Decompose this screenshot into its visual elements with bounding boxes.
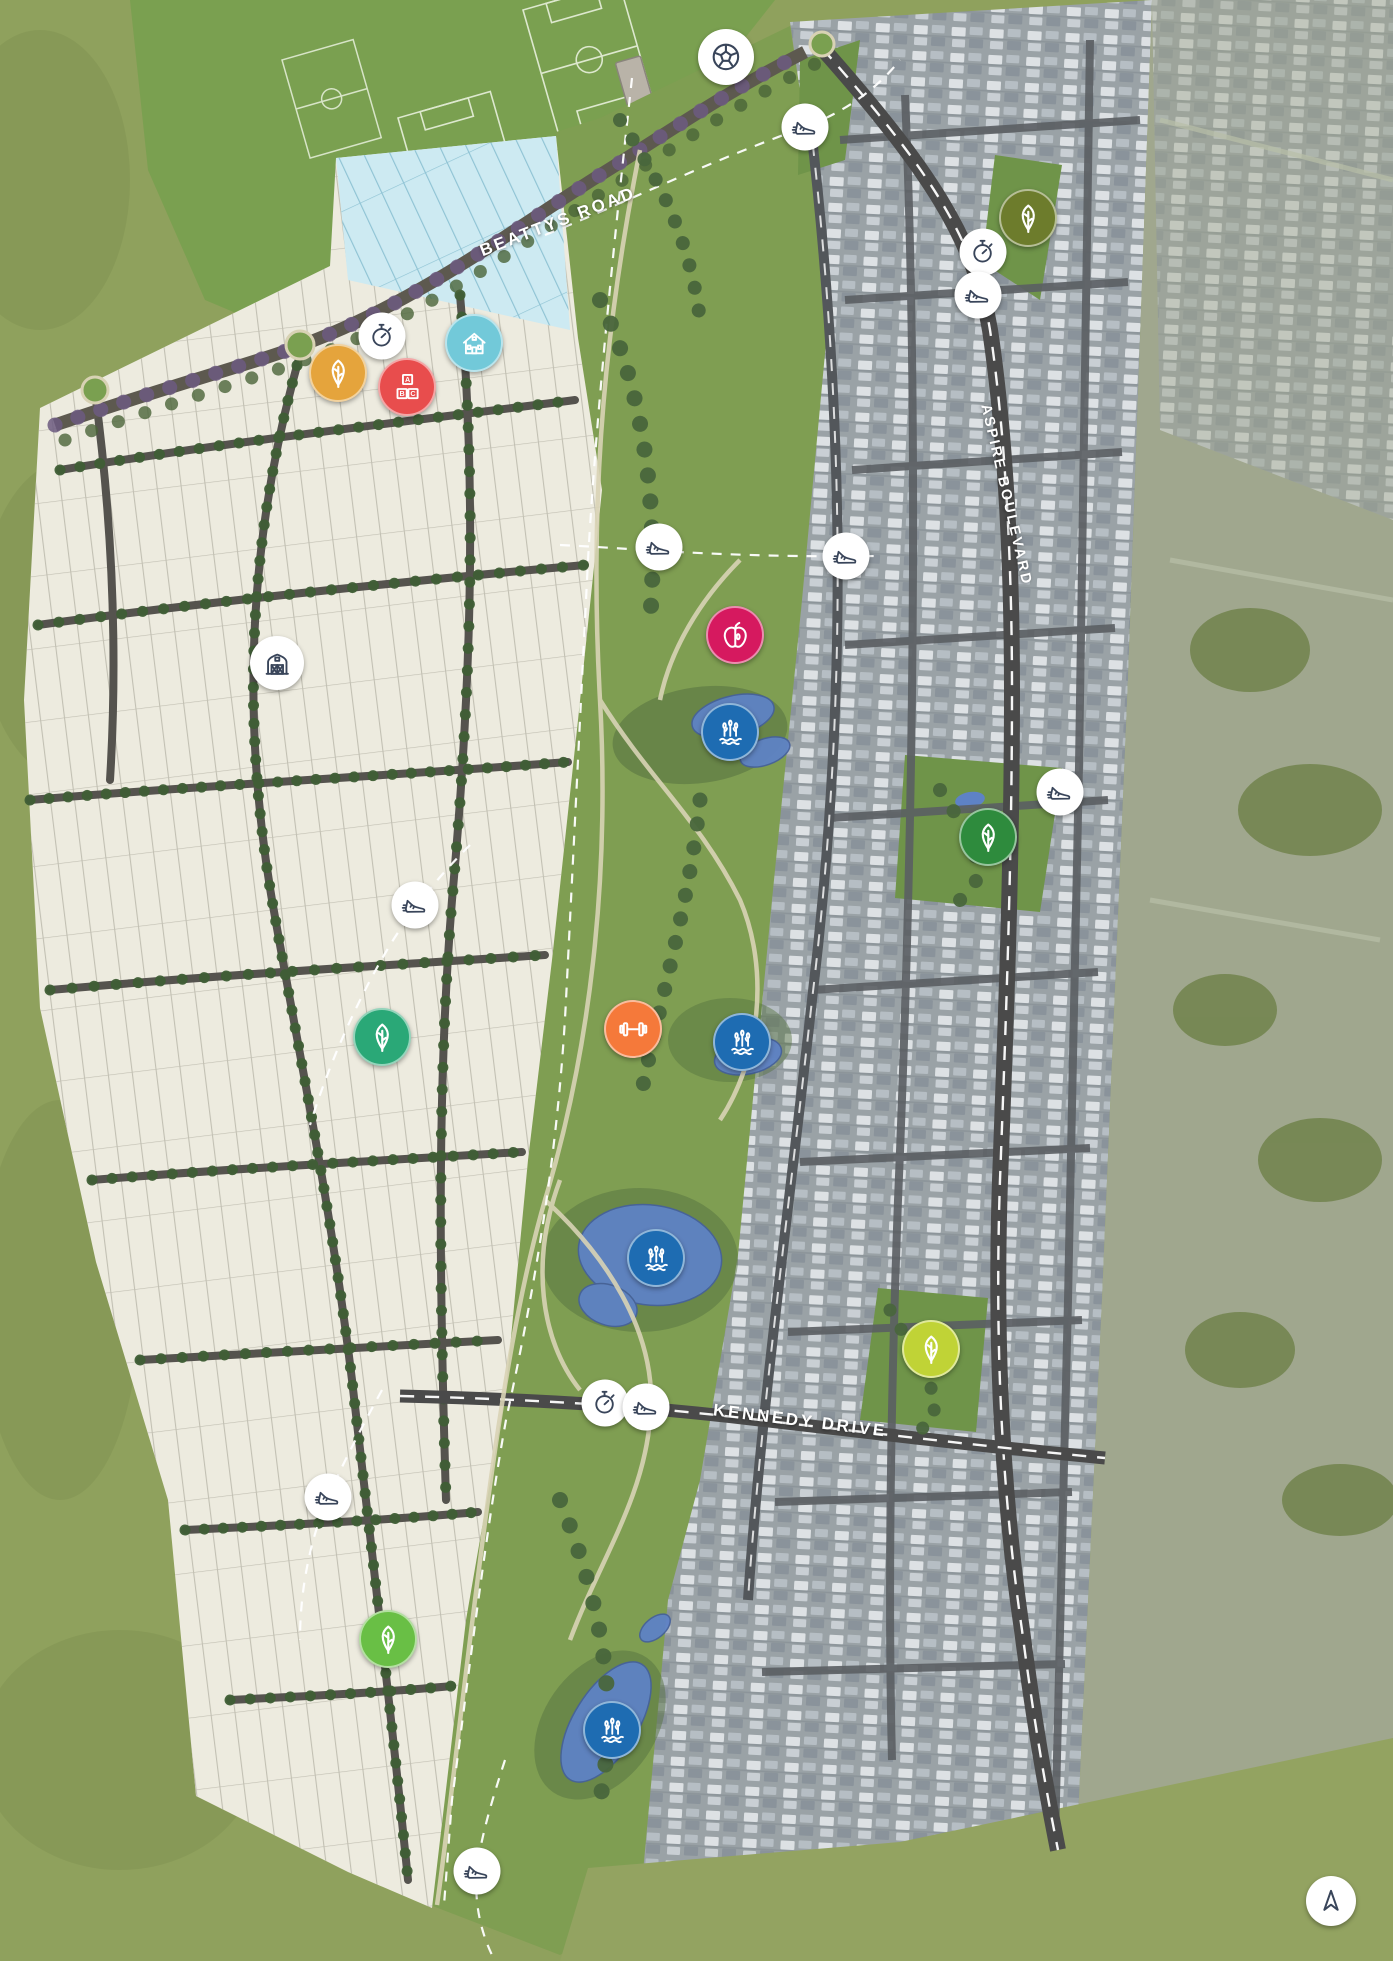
running-shoe-icon	[313, 1482, 343, 1512]
marker-leaf-3[interactable]	[959, 808, 1017, 866]
marker-wetland-reeds-1[interactable]	[701, 703, 759, 761]
marker-leaf-2[interactable]	[309, 344, 367, 402]
marker-running-shoe-2[interactable]	[955, 272, 1002, 319]
leaf-icon	[365, 1020, 400, 1055]
markers-layer	[0, 0, 1393, 1961]
dumbbell-icon	[616, 1012, 651, 1047]
wetland-reeds-icon	[725, 1025, 760, 1060]
running-shoe-icon	[790, 112, 820, 142]
marker-leaf-1[interactable]	[999, 189, 1057, 247]
running-shoe-icon	[462, 1856, 492, 1886]
stopwatch-icon	[590, 1388, 620, 1418]
marker-stopwatch-2[interactable]	[359, 313, 406, 360]
marker-wetland-reeds-2[interactable]	[713, 1013, 771, 1071]
marker-wetland-reeds-3[interactable]	[627, 1229, 685, 1287]
running-shoe-icon	[1045, 777, 1075, 807]
running-shoe-icon	[963, 280, 993, 310]
marker-dumbbell-1[interactable]	[604, 1000, 662, 1058]
marker-running-shoe-9[interactable]	[454, 1848, 501, 1895]
marker-stopwatch-1[interactable]	[960, 229, 1007, 276]
wetland-reeds-icon	[713, 715, 748, 750]
leaf-icon	[1011, 201, 1046, 236]
marker-leaf-4[interactable]	[353, 1008, 411, 1066]
marker-running-shoe-7[interactable]	[623, 1384, 670, 1431]
running-shoe-icon	[400, 890, 430, 920]
marker-soccer-ball-1[interactable]	[698, 29, 754, 85]
marker-running-shoe-8[interactable]	[305, 1474, 352, 1521]
marker-wetland-reeds-4[interactable]	[583, 1701, 641, 1759]
apple-icon	[718, 618, 753, 653]
north-arrow-icon	[1315, 1885, 1347, 1917]
abc-blocks-icon	[390, 370, 425, 405]
house-icon	[457, 326, 492, 361]
marker-leaf-5[interactable]	[902, 1320, 960, 1378]
marker-running-shoe-4[interactable]	[823, 533, 870, 580]
marker-leaf-6[interactable]	[359, 1610, 417, 1668]
barn-icon	[260, 646, 295, 681]
soccer-ball-icon	[708, 39, 744, 75]
wetland-reeds-icon	[639, 1241, 674, 1276]
leaf-icon	[371, 1622, 406, 1657]
marker-running-shoe-6[interactable]	[392, 882, 439, 929]
leaf-icon	[321, 356, 356, 391]
stopwatch-icon	[367, 321, 397, 351]
stopwatch-icon	[968, 237, 998, 267]
marker-north-arrow-1	[1306, 1876, 1356, 1926]
marker-abc-blocks-1[interactable]	[378, 358, 436, 416]
marker-barn-1[interactable]	[250, 636, 304, 690]
running-shoe-icon	[644, 532, 674, 562]
marker-running-shoe-5[interactable]	[1037, 769, 1084, 816]
leaf-icon	[971, 820, 1006, 855]
running-shoe-icon	[831, 541, 861, 571]
masterplan-map: BEATTYS ROAD ASPIRE BOULEVARD KENNEDY DR…	[0, 0, 1393, 1961]
marker-running-shoe-3[interactable]	[636, 524, 683, 571]
marker-running-shoe-1[interactable]	[782, 104, 829, 151]
marker-stopwatch-3[interactable]	[582, 1380, 629, 1427]
marker-apple-1[interactable]	[706, 606, 764, 664]
leaf-icon	[914, 1332, 949, 1367]
marker-house-1[interactable]	[445, 314, 503, 372]
wetland-reeds-icon	[595, 1713, 630, 1748]
running-shoe-icon	[631, 1392, 661, 1422]
